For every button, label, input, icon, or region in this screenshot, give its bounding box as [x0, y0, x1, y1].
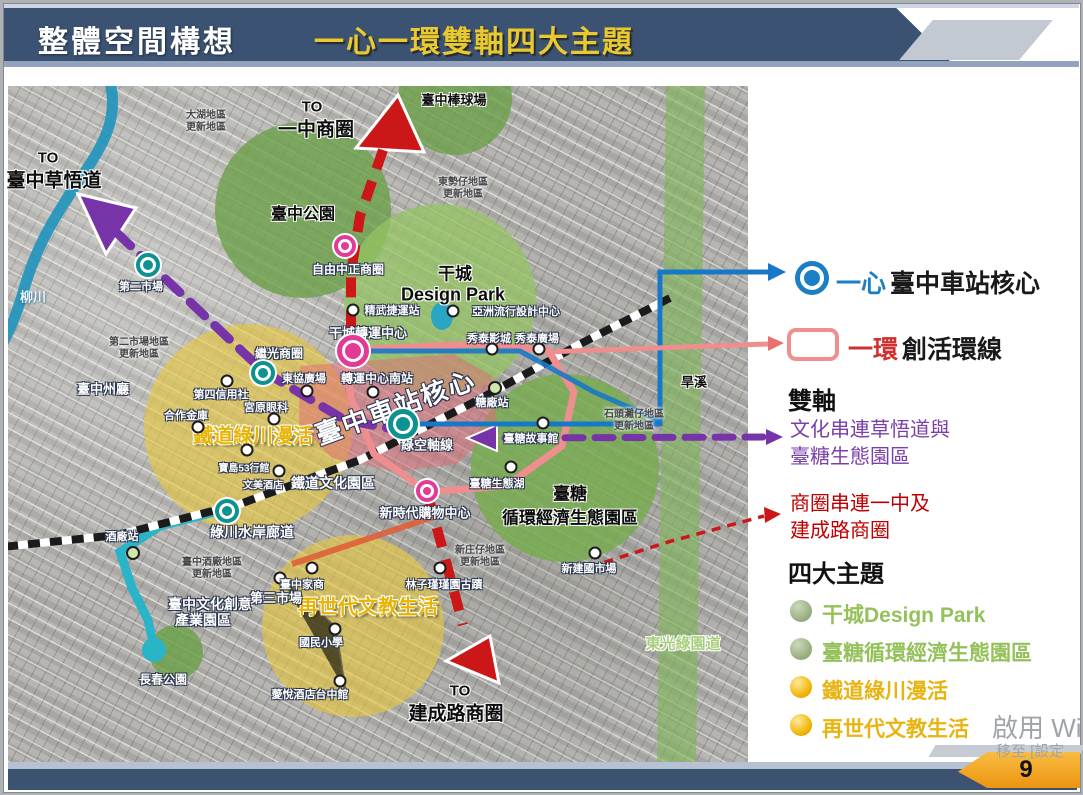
- header-bottom-strip: [4, 61, 1079, 67]
- zone-hanxi-greenway: [657, 86, 705, 762]
- legend-axes-title: 雙軸: [788, 381, 836, 416]
- page-subtitle: 一心一環雙軸四大主題: [314, 17, 634, 61]
- legend-axis2-line2: 建成路商圈: [790, 514, 890, 543]
- theme-bullet-green-2: [790, 638, 812, 660]
- legend-core-icon: [795, 261, 829, 295]
- legend-axis2-line1: 商圈串連一中及: [790, 487, 930, 516]
- footer-light-strip: [8, 762, 1077, 769]
- map-zones-layer: [8, 86, 748, 762]
- legend-core-desc: 臺中車站核心: [890, 264, 1040, 300]
- pond-gancheng: [431, 302, 453, 330]
- page-title: 整體空間構想: [38, 17, 236, 61]
- theme-item-gancheng: 干城Design Park: [822, 599, 985, 629]
- red-axis-arrow-south: [446, 636, 499, 683]
- legend-axis1-line2: 臺糖生態園區: [790, 440, 910, 469]
- theme-item-taisugar: 臺糖循環經濟生態園區: [822, 637, 1032, 667]
- legend-ring-term: 一環: [848, 330, 898, 366]
- header-top-strip: [4, 4, 1079, 8]
- pond-cultural-park: [142, 638, 166, 662]
- map-canvas: [8, 86, 748, 762]
- zone-taisugar-park: [471, 374, 659, 562]
- legend-ring-desc: 創活環線: [902, 330, 1002, 366]
- footer-navy-bar: [8, 769, 1077, 790]
- slide-stage[interactable]: 整體空間構想 一心一環雙軸四大主題: [0, 0, 1083, 795]
- theme-item-railway: 鐵道綠川漫活: [822, 675, 948, 705]
- theme-bullet-yellow-2: [790, 714, 812, 736]
- legend-themes-title: 四大主題: [788, 554, 884, 589]
- windows-activation-watermark-line2: 移至 [設定: [996, 740, 1064, 761]
- legend-axis1-line1: 文化串連草悟道與: [790, 413, 950, 442]
- legend-ring-icon: [787, 328, 839, 361]
- legend-core-term: 一心: [836, 264, 886, 300]
- theme-bullet-green-1: [790, 600, 812, 622]
- theme-bullet-yellow-1: [790, 676, 812, 698]
- zone-nextgen-education: [262, 535, 444, 717]
- theme-item-nextgen: 再世代文教生活: [822, 713, 969, 743]
